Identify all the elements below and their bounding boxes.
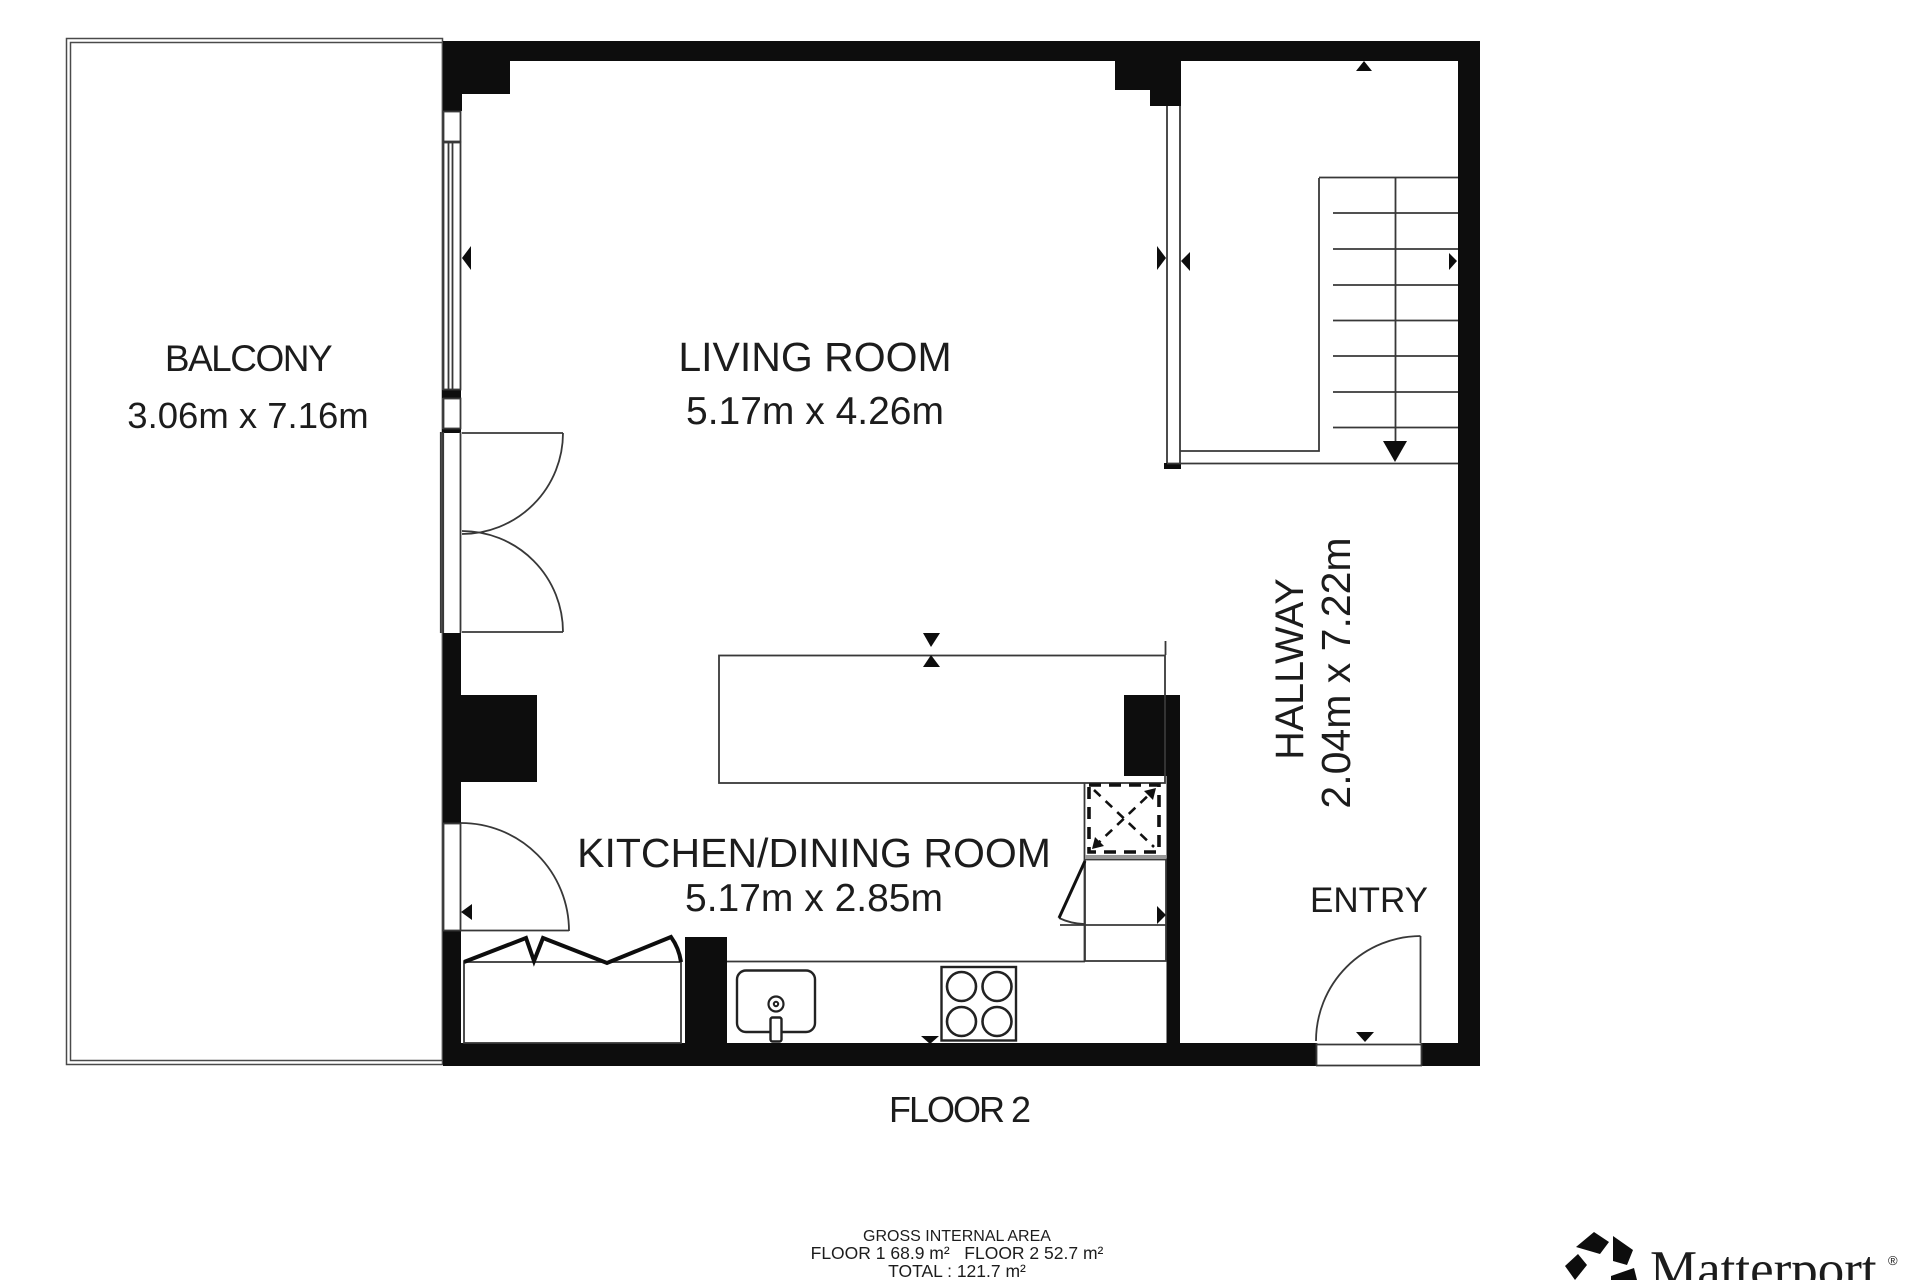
svg-text:TOTAL : 121.7 m²: TOTAL : 121.7 m²	[888, 1261, 1026, 1280]
svg-text:ENTRY: ENTRY	[1310, 881, 1428, 920]
svg-text:HALLWAY: HALLWAY	[1268, 578, 1312, 759]
svg-text:®: ®	[1888, 1253, 1898, 1268]
svg-text:5.17m x 4.26m: 5.17m x 4.26m	[686, 390, 944, 433]
svg-text:LIVING ROOM: LIVING ROOM	[678, 334, 951, 380]
svg-text:5.17m x 2.85m: 5.17m x 2.85m	[685, 877, 943, 920]
svg-text:FLOOR 1 68.9 m² FLOOR 2 52.7: FLOOR 1 68.9 m² FLOOR 2 52.7 m²	[811, 1243, 1104, 1263]
svg-text:BALCONY: BALCONY	[165, 338, 332, 379]
svg-text:3.06m x 7.16m: 3.06m x 7.16m	[127, 395, 368, 436]
svg-text:FLOOR 2: FLOOR 2	[889, 1089, 1030, 1130]
svg-text:KITCHEN/DINING ROOM: KITCHEN/DINING ROOM	[577, 830, 1051, 876]
svg-text:Matterport: Matterport	[1650, 1241, 1877, 1280]
svg-text:2.04m x 7.22m: 2.04m x 7.22m	[1313, 537, 1359, 808]
